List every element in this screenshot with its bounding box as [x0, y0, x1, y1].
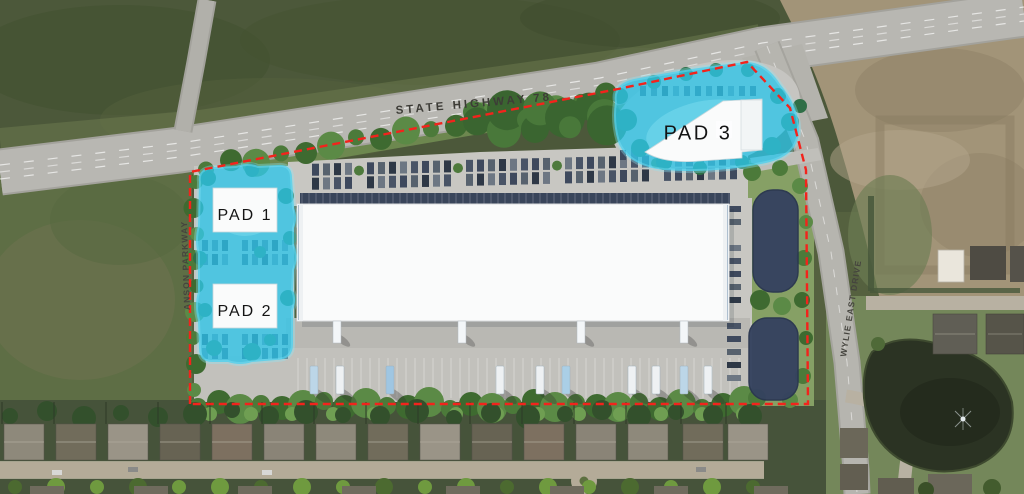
parked-car [532, 158, 539, 170]
tree [295, 142, 317, 164]
pad1-label: PAD 1 [217, 207, 272, 224]
house [446, 486, 480, 494]
field-texture [50, 175, 190, 265]
tree [113, 405, 129, 421]
building-footprint [297, 204, 729, 321]
tree [348, 129, 364, 145]
tree [799, 331, 813, 345]
tree [453, 163, 463, 173]
street-car [696, 467, 706, 472]
house-under-construction [938, 250, 964, 282]
trailer [628, 366, 636, 394]
parked-car [543, 172, 550, 184]
parked-car [587, 157, 594, 169]
tree [871, 337, 885, 351]
parked-car [631, 170, 638, 182]
dock-truck [680, 321, 688, 343]
tree [654, 407, 668, 421]
tree [481, 403, 501, 423]
parked-car [400, 176, 407, 188]
site-plan-aerial: PAD 1 PAD 2 PAD 3 STATE HIGHWAY 78 [0, 0, 1024, 494]
parked-car [727, 336, 741, 342]
house [342, 486, 376, 494]
parked-car [433, 175, 440, 187]
tree [2, 408, 18, 424]
parked-car [510, 159, 517, 171]
parked-car [488, 173, 495, 185]
tree [354, 166, 364, 176]
house [928, 474, 972, 494]
tree [463, 107, 491, 135]
parked-car [598, 171, 605, 183]
parked-car [609, 170, 616, 182]
pad2-label: PAD 2 [217, 303, 272, 320]
street-car [262, 470, 272, 475]
tree [8, 480, 22, 494]
tree [370, 128, 392, 150]
pad3-footprint-wing [741, 100, 762, 150]
parked-car [400, 162, 407, 174]
parked-car [543, 158, 550, 170]
parked-car [345, 163, 352, 175]
dock-truck [577, 321, 585, 343]
trailer [336, 366, 344, 394]
parked-car [587, 171, 594, 183]
parked-car [477, 174, 484, 186]
parked-car [576, 157, 583, 169]
parked-car [499, 173, 506, 185]
tree [183, 402, 207, 426]
tree [557, 406, 573, 422]
parked-car [576, 171, 583, 183]
house [30, 486, 64, 494]
street-car [52, 470, 62, 475]
tree [392, 117, 420, 145]
tree [244, 407, 258, 421]
parked-car [411, 175, 418, 187]
trailer [386, 366, 394, 394]
parked-car [466, 174, 473, 186]
house [840, 428, 868, 458]
tree [405, 399, 429, 423]
parked-car [323, 177, 330, 189]
parked-car [521, 172, 528, 184]
hedgerow [870, 288, 1020, 293]
parked-car [433, 161, 440, 173]
tree [370, 406, 390, 426]
tree [668, 404, 684, 420]
parked-car [466, 160, 473, 172]
parked-car [444, 160, 451, 172]
parked-car [727, 375, 741, 381]
tree [335, 407, 351, 423]
house [970, 246, 1006, 280]
detention-pond-north [753, 190, 798, 292]
car-row [300, 193, 730, 204]
parked-car [598, 157, 605, 169]
house [550, 486, 584, 494]
parked-car [565, 157, 572, 169]
tree [90, 480, 104, 494]
house [878, 478, 914, 494]
tree [613, 407, 627, 421]
parked-car [532, 172, 539, 184]
dock-truck [458, 321, 466, 343]
parked-car [345, 177, 352, 189]
parked-car [367, 162, 374, 174]
parked-car [378, 162, 385, 174]
parked-car [727, 362, 741, 368]
house [134, 486, 168, 494]
parked-car [609, 156, 616, 168]
pad3-label: PAD 3 [664, 122, 733, 144]
site-plan-canvas: PAD 1 PAD 2 PAD 3 STATE HIGHWAY 78 [0, 0, 1024, 494]
parked-car [422, 175, 429, 187]
trailer [652, 366, 660, 394]
tree [773, 297, 791, 315]
street-car [128, 467, 138, 472]
parked-car [422, 161, 429, 173]
detention-pond-south [749, 318, 798, 400]
warehouse-building [297, 204, 734, 327]
tree [418, 480, 432, 494]
parked-car [389, 176, 396, 188]
tree [703, 405, 723, 425]
parked-car [477, 160, 484, 172]
parked-car [727, 349, 741, 355]
building-edge [723, 204, 729, 321]
pond-deep [900, 378, 1000, 446]
tree [446, 410, 462, 426]
house [654, 486, 688, 494]
house [754, 486, 788, 494]
tree [750, 290, 770, 310]
parked-car [367, 176, 374, 188]
trailer [536, 366, 544, 394]
tree [500, 480, 514, 494]
parked-car [334, 177, 341, 189]
tree [552, 161, 562, 171]
trailer [704, 366, 712, 394]
parked-car [378, 176, 385, 188]
tree [559, 116, 581, 138]
hedgerow [868, 196, 874, 291]
tree [172, 480, 186, 494]
parked-car [499, 159, 506, 171]
parked-car [521, 158, 528, 170]
parked-car [444, 174, 451, 186]
house [238, 486, 272, 494]
trailer [680, 366, 688, 394]
parked-car [389, 162, 396, 174]
parked-car [312, 164, 319, 176]
trailer [562, 366, 570, 394]
tree [582, 480, 596, 494]
house [840, 464, 868, 490]
parked-car [334, 163, 341, 175]
trailer [310, 366, 318, 394]
house [1010, 246, 1024, 282]
parked-car [620, 170, 627, 182]
parked-car [642, 169, 649, 181]
parked-car [565, 171, 572, 183]
parked-car [510, 173, 517, 185]
parked-car [488, 159, 495, 171]
parked-car [411, 161, 418, 173]
parked-car [323, 163, 330, 175]
dock-truck [333, 321, 341, 343]
trailer [496, 366, 504, 394]
parked-car [312, 178, 319, 190]
